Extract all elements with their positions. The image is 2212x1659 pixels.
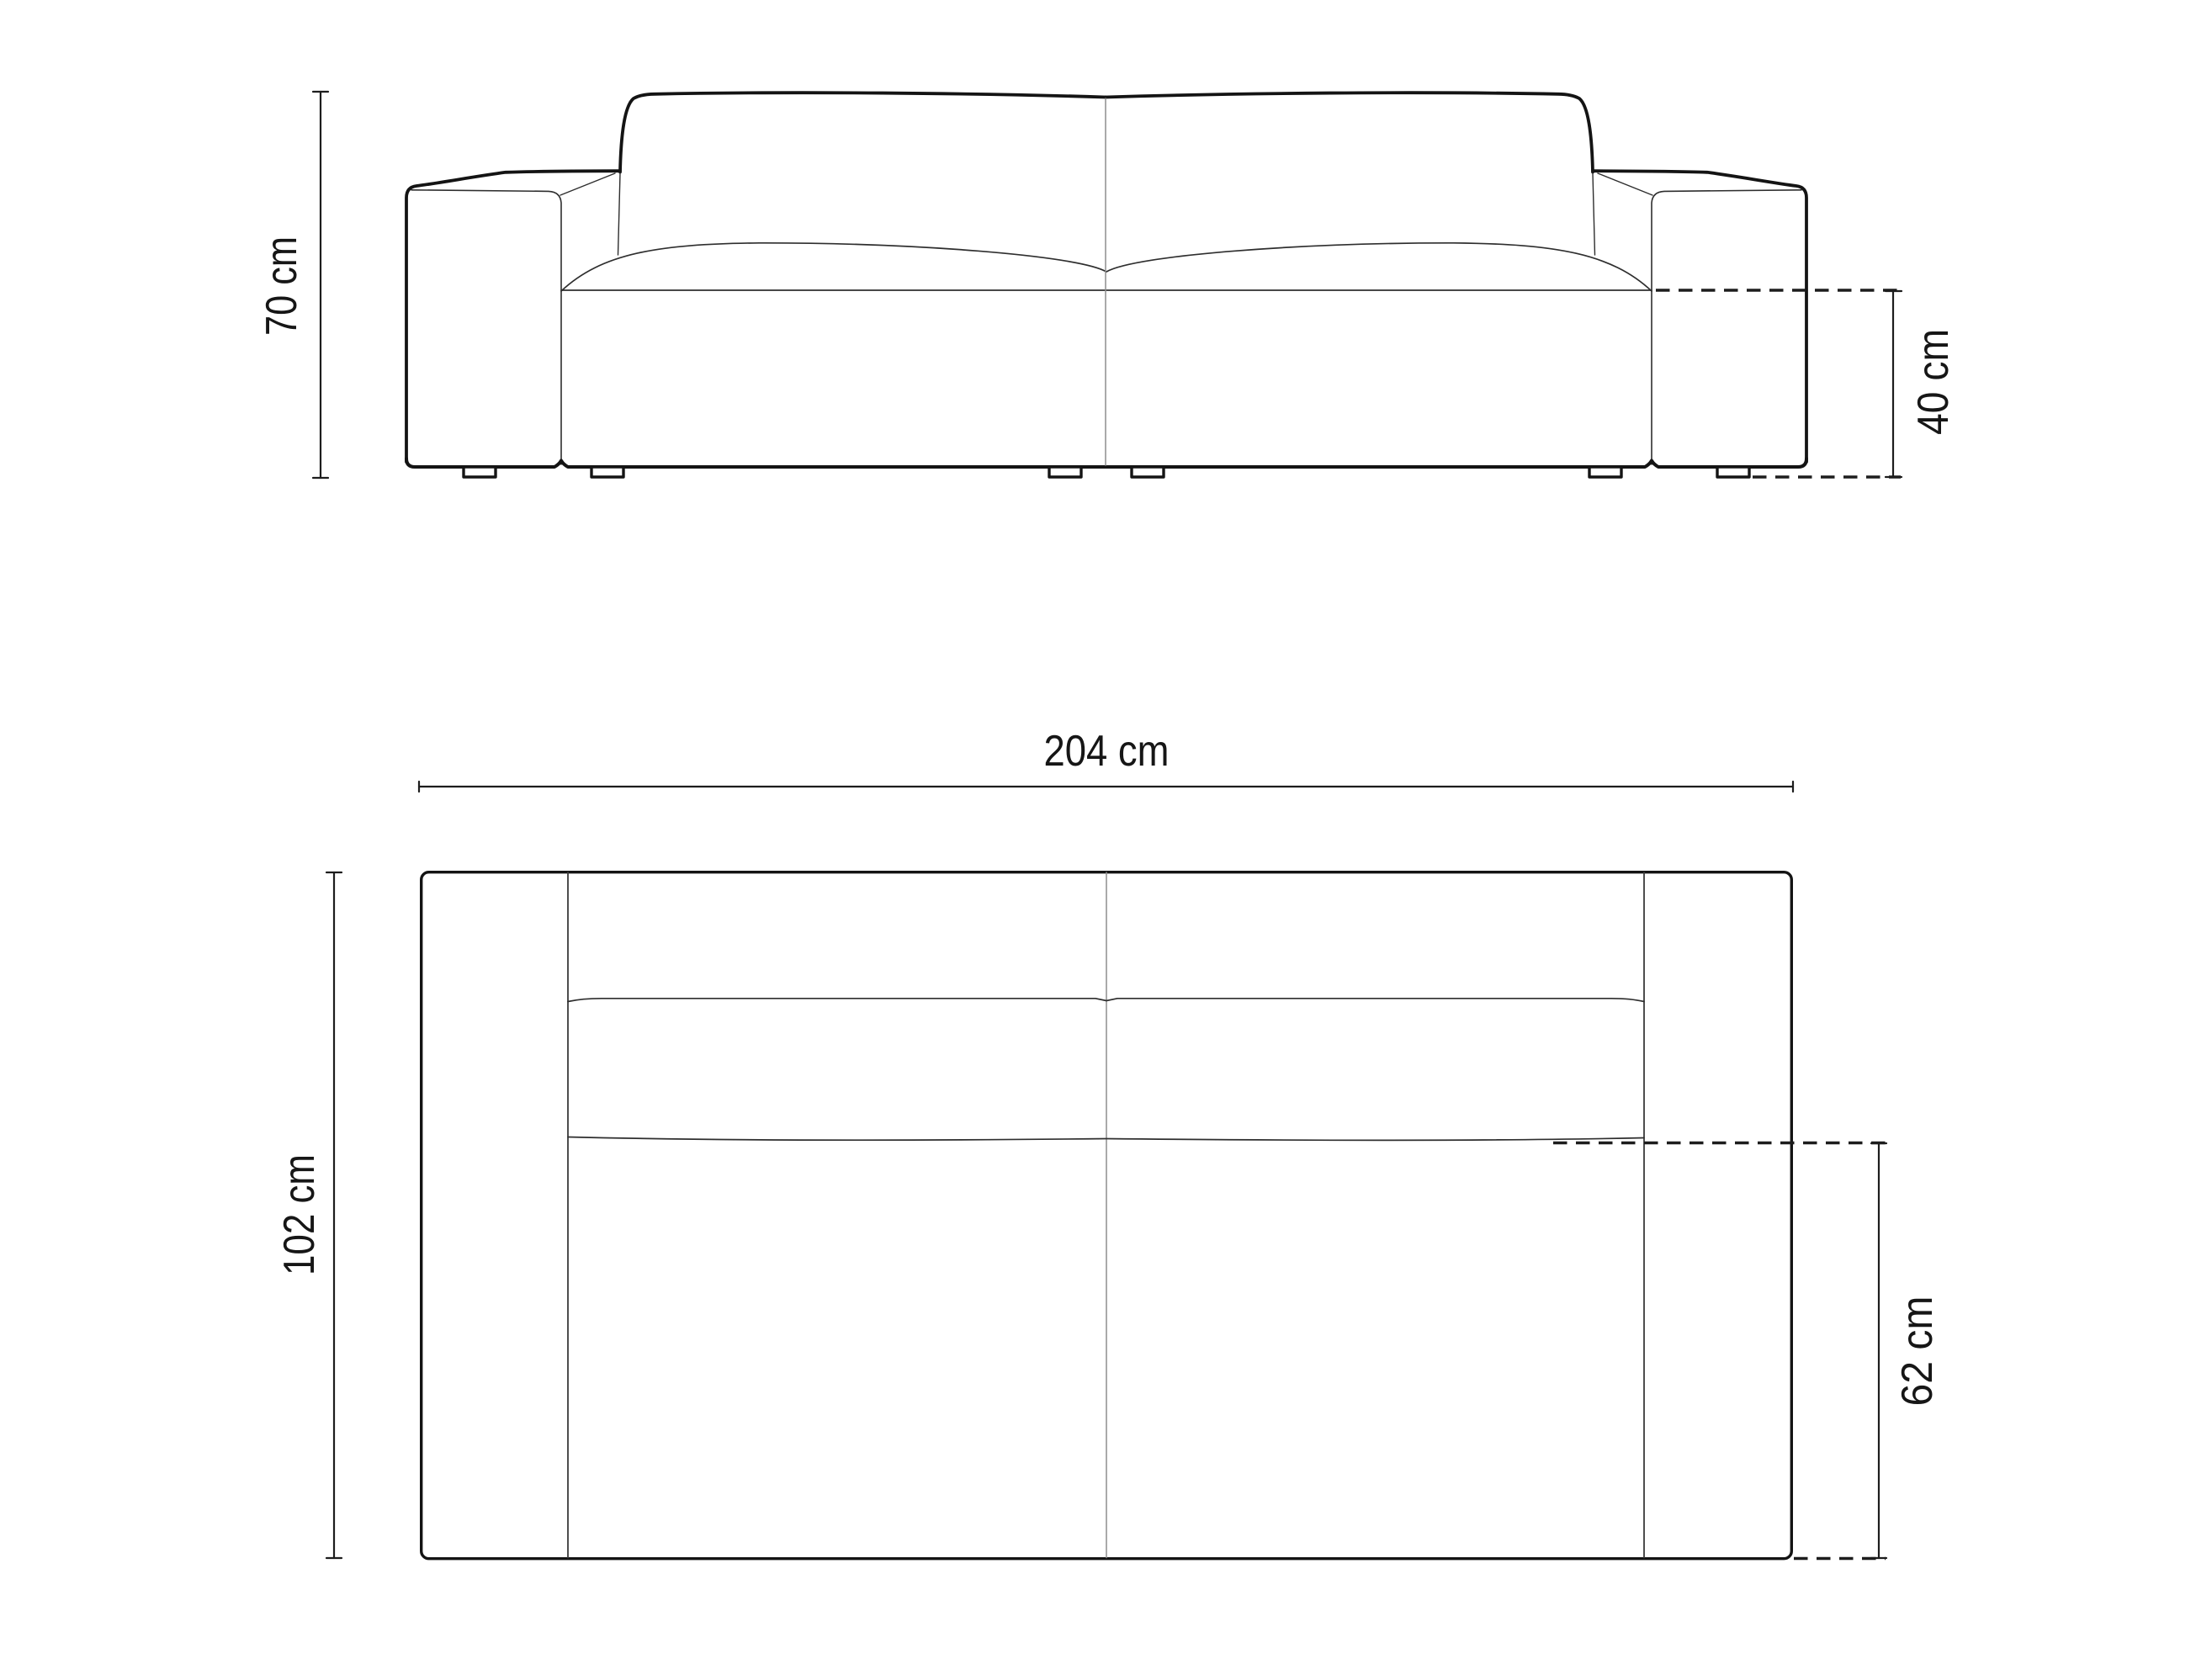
svg-text:40 cm: 40 cm [1909, 329, 1958, 435]
svg-text:70 cm: 70 cm [257, 236, 306, 336]
svg-text:204 cm: 204 cm [1044, 727, 1170, 776]
svg-text:62 cm: 62 cm [1893, 1296, 1942, 1407]
svg-text:102 cm: 102 cm [275, 1154, 324, 1275]
